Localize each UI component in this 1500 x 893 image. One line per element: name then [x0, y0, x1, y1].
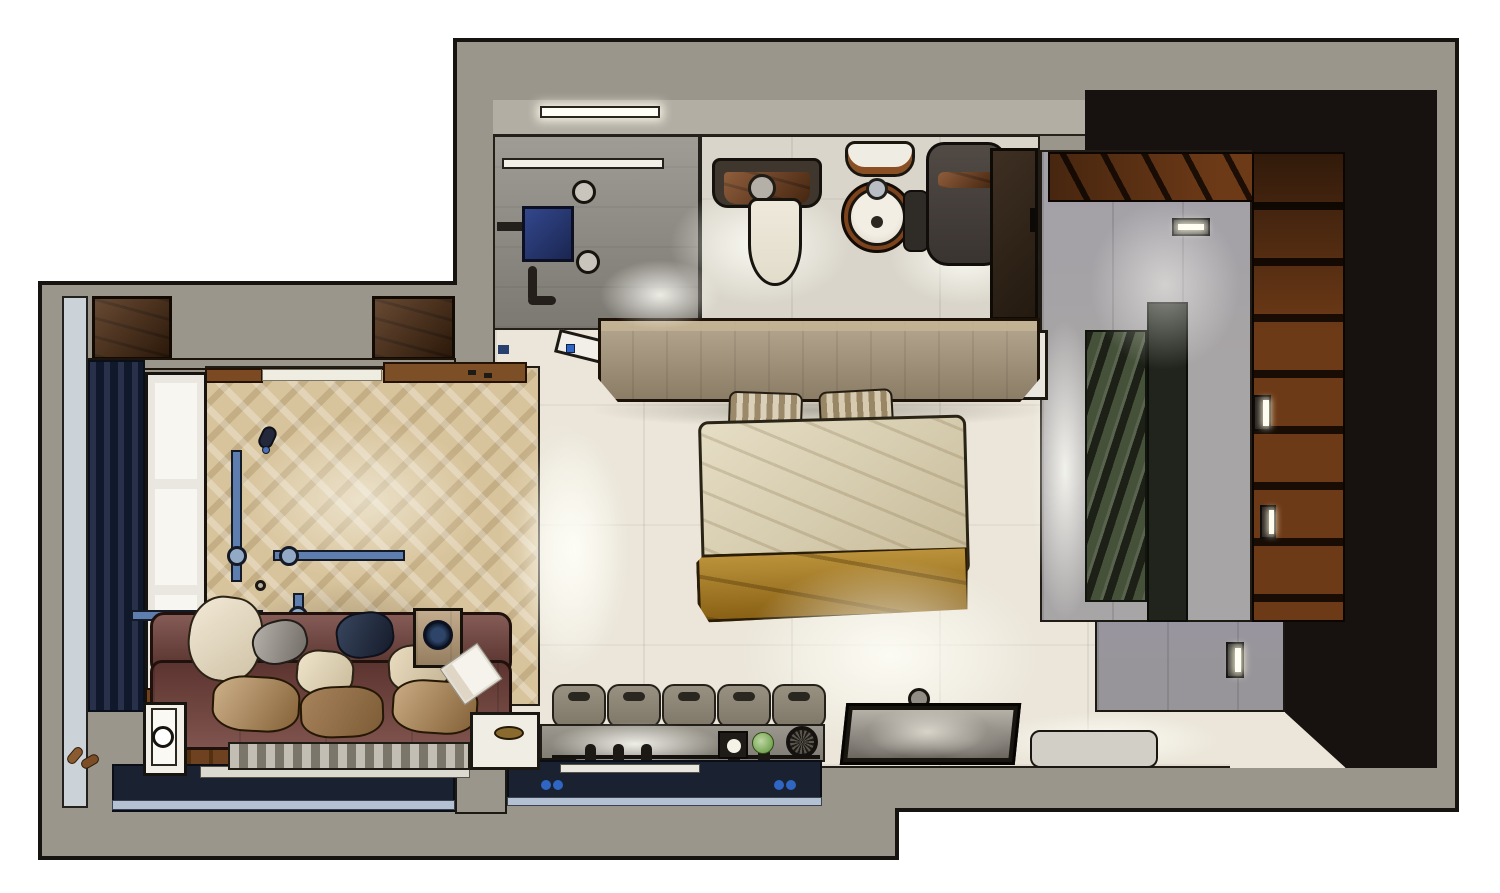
door-hinge: [498, 345, 509, 354]
sauna-lounger: [1085, 330, 1147, 602]
sauna-plank-bench: [1252, 152, 1345, 622]
sauna-south-wall: [1095, 620, 1285, 712]
shower-grab-bar-foot: [528, 296, 556, 305]
counter-light-edge: [507, 797, 822, 806]
window-pane: [155, 383, 197, 479]
sauna-wall-light2-icon: [1260, 505, 1276, 539]
floor-plan-stage: [0, 0, 1500, 893]
sauna-dark-wall-top: [1085, 90, 1437, 154]
woven-bench: [228, 742, 470, 770]
threshold-item: [468, 370, 476, 375]
entry-door-handle: [566, 344, 575, 353]
sofa-cushion-tan: [299, 685, 385, 740]
window-pane: [155, 489, 197, 585]
toilet: [748, 198, 802, 286]
counter-knob-icon: [553, 780, 563, 790]
sauna-lounger-frame: [1147, 302, 1188, 622]
wall-tv: [840, 703, 1022, 765]
hamper-wood-rim: [938, 172, 994, 188]
cabinet-handle-icon: [1030, 208, 1035, 232]
sink-mirror: [845, 141, 915, 177]
sink-faucet-icon: [866, 178, 888, 200]
threshold-wood2: [383, 362, 527, 383]
threshold-light: [262, 369, 382, 381]
pendant-joint-icon: [279, 546, 299, 566]
sauna-wall-light-icon: [1253, 395, 1271, 431]
sauna-dark-wall-right: [1345, 150, 1437, 624]
lettuce-icon: [752, 732, 774, 754]
threshold-wood: [205, 368, 263, 383]
bar-chair: [717, 684, 771, 728]
speaker-dot-icon: [262, 446, 270, 454]
south-wall-sconce-icon: [1226, 642, 1244, 678]
shower-spot-icon: [572, 180, 596, 204]
shower-spot2-icon: [576, 250, 600, 274]
platform-light-edge: [112, 800, 455, 810]
wardrobe-cabinet-left: [92, 296, 172, 360]
white-bench: [1030, 730, 1158, 768]
bed-throw-blanket: [696, 545, 970, 622]
sauna-sconce-icon: [1172, 218, 1210, 236]
tv-screen: [847, 710, 1013, 758]
shower-panel: [522, 206, 574, 262]
round-burner-icon: [786, 726, 818, 758]
bathroom-cabinet: [990, 148, 1038, 320]
pendant-joint-icon: [227, 546, 247, 566]
bar-chair: [552, 684, 606, 728]
bar-chair: [772, 684, 826, 728]
counter-knob-icon: [541, 780, 551, 790]
sink-drain: [871, 216, 883, 228]
panel-knob-icon: [152, 726, 174, 748]
counter-knob-icon: [774, 780, 784, 790]
curtain: [88, 360, 145, 712]
console-tray-icon: [494, 726, 524, 740]
counter-tray: [560, 764, 700, 773]
ceiling-dot-icon: [255, 580, 266, 591]
shower-drain-strip: [502, 158, 664, 169]
sofa-console: [470, 712, 540, 770]
ceiling-light-strip: [540, 106, 660, 118]
sofa-cushion-tan: [211, 674, 302, 735]
bar-chair: [607, 684, 661, 728]
wardrobe-cabinet-right: [372, 296, 455, 360]
threshold-item: [484, 373, 492, 378]
side-table-tray: [423, 620, 453, 650]
window-outer-sill: [62, 296, 88, 808]
bar-chairs: [552, 684, 822, 726]
bar-chair: [662, 684, 716, 728]
desk-top-edge: [601, 321, 1037, 331]
shower-glass-partition: [698, 136, 702, 328]
counter-knob-icon: [786, 780, 796, 790]
countertop-stove: [718, 731, 748, 759]
